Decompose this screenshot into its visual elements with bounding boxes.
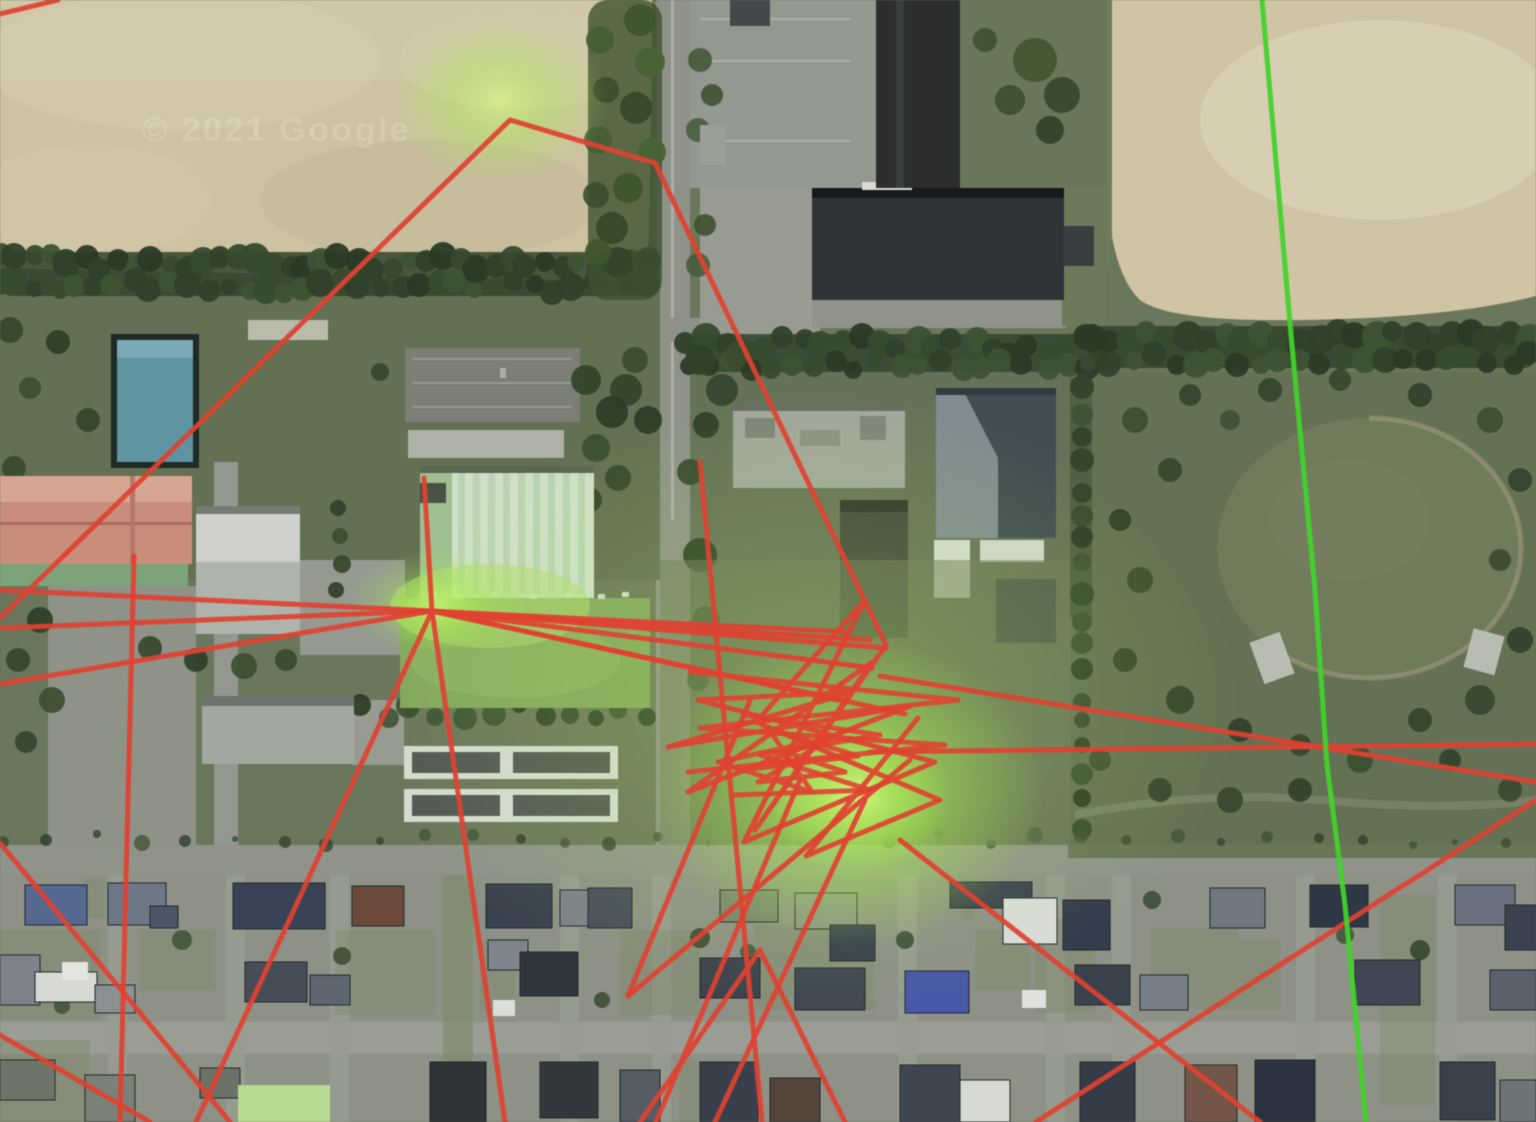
svg-text:© 2021 Google: © 2021 Google [142, 111, 411, 149]
